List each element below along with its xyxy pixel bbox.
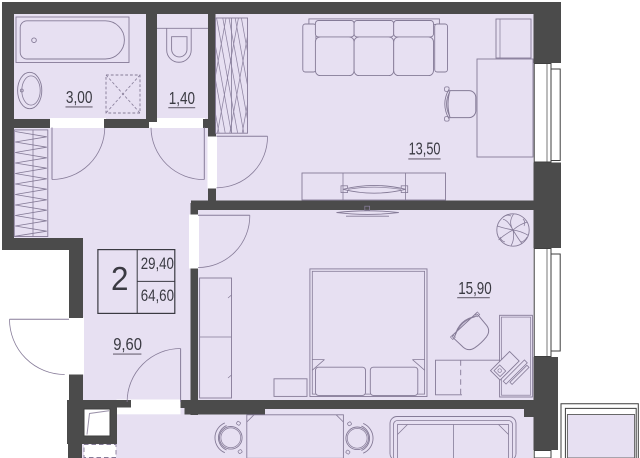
svg-text:1,40: 1,40 — [169, 88, 195, 108]
svg-text:29,40: 29,40 — [141, 254, 174, 273]
svg-text:2: 2 — [111, 261, 129, 298]
svg-text:15,90: 15,90 — [458, 278, 492, 298]
svg-text:3,00: 3,00 — [66, 87, 93, 107]
svg-text:9,60: 9,60 — [113, 334, 142, 354]
svg-text:64,60: 64,60 — [141, 286, 174, 305]
svg-text:13,50: 13,50 — [409, 139, 441, 159]
